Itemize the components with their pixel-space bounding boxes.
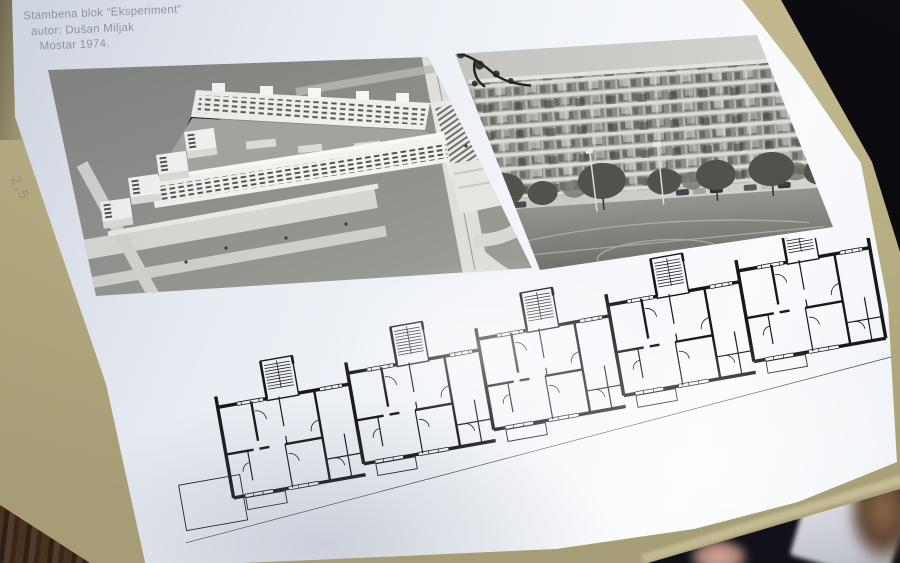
presentation-board: Stambena blok “Eksperiment” autor: Dušan… [0,0,900,563]
entry-porch [179,475,248,531]
plan-module [601,244,758,409]
plan-module [731,238,888,375]
plan-module [471,278,628,443]
poster-caption: Stambena blok “Eksperiment” autor: Dušan… [23,3,183,56]
plan-module [341,313,498,478]
pencil-note: 2,5 [8,173,34,203]
photograph-scene: 2,5 Stambena blok “Eksperiment” autor: D… [0,0,900,563]
plan-module [211,347,368,512]
